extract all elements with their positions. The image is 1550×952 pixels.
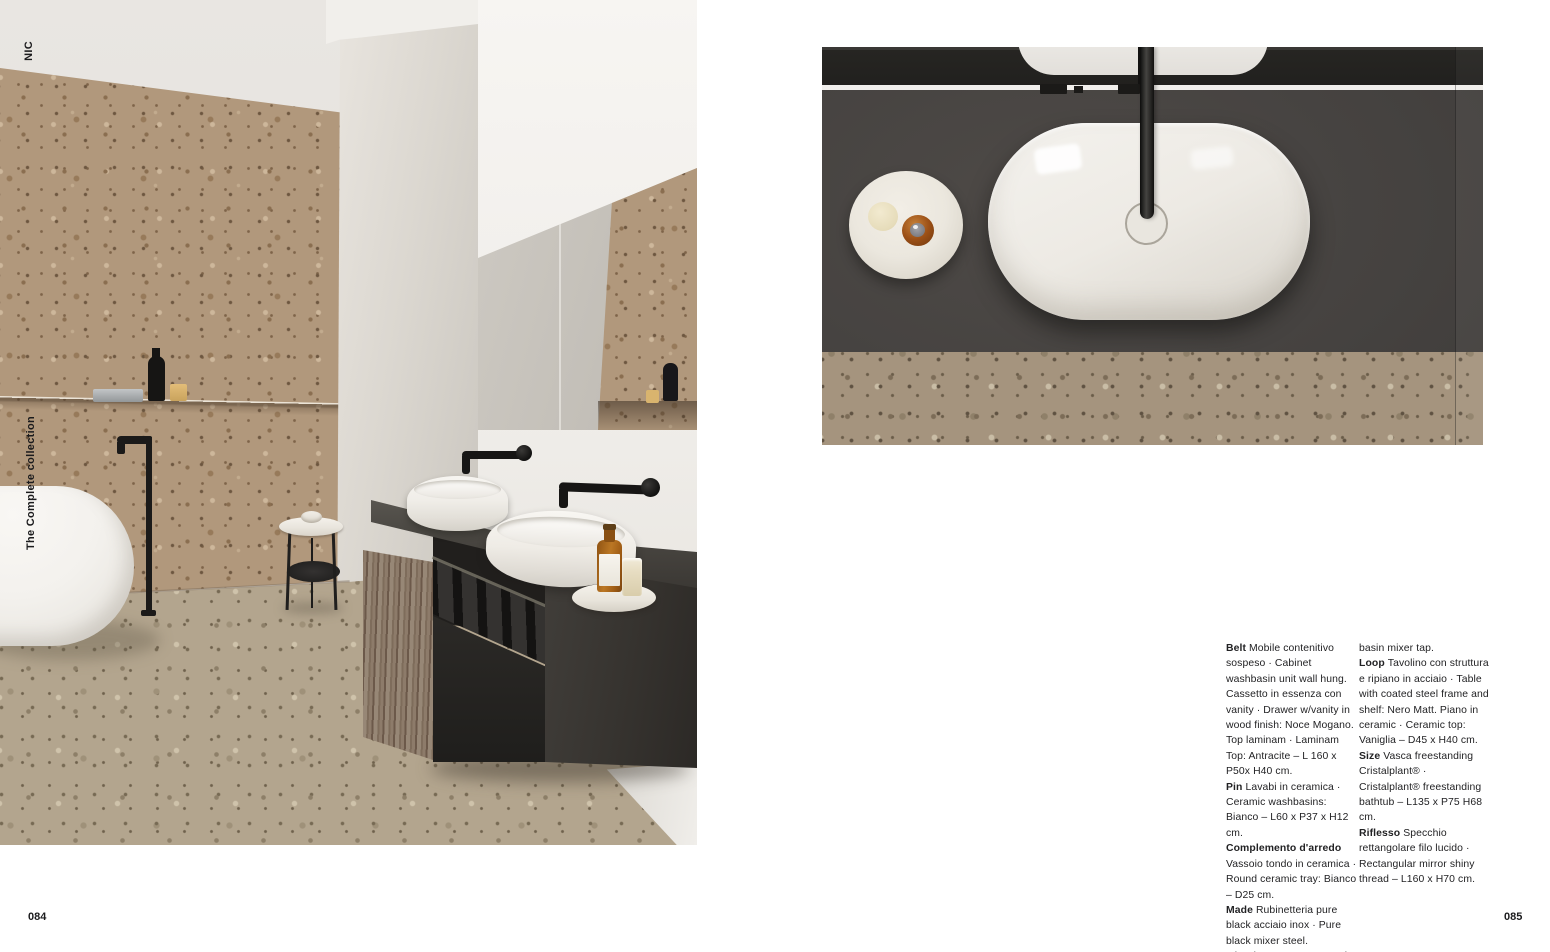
spec-column-2: basin mixer tap.Loop Tavolino con strutt…: [1359, 641, 1489, 888]
mixer-handle: [1118, 84, 1140, 94]
folded-towel: [93, 389, 143, 402]
floor-mixer-tap-base: [141, 610, 156, 616]
spec-item: basin mixer tap.: [1359, 641, 1489, 656]
spec-item: Pin Lavabi in ceramica · Ceramic washbas…: [1226, 780, 1358, 842]
page-number-left: 084: [28, 911, 46, 923]
gold-candle: [170, 384, 187, 401]
spec-item: Riflesso Specchio rettangolare filo luci…: [1359, 826, 1489, 888]
washbasin-left-rim: [414, 480, 501, 499]
black-bottle-neck: [152, 348, 160, 358]
counter-seam: [1455, 47, 1483, 445]
soap-bar: [868, 202, 898, 231]
mirror-shelf-reflection: [598, 401, 697, 430]
mixer-handle: [1074, 86, 1083, 93]
page-number-right: 085: [1504, 911, 1522, 923]
right-photo-basin-top-view: [822, 47, 1483, 445]
side-table-bowl: [301, 511, 322, 523]
floor-mixer-tap-pole: [146, 437, 152, 614]
spec-item: Belt Mobile contenitivo sospeso · Cabine…: [1226, 641, 1358, 780]
wall-mixer-tap-right-flange: [641, 478, 660, 497]
wall-mixer-tap-left-outlet: [462, 456, 470, 474]
spec-item: Size Vasca freestanding Cristalplant® · …: [1359, 749, 1489, 826]
spec-item: Made Rubinetteria pure black acciaio ino…: [1226, 903, 1358, 952]
black-mixer-tap: [1140, 47, 1154, 219]
mirror-bottle-reflection: [663, 363, 678, 401]
wall-mixer-tap-right-outlet: [559, 489, 568, 508]
mirror-candle-reflection: [646, 390, 659, 403]
amber-bottle-label: [599, 554, 620, 586]
mixer-handle: [1040, 84, 1067, 94]
catalog-spread: NIC The Complete collection 084 085 Belt…: [0, 0, 1550, 952]
spec-column-1: Belt Mobile contenitivo sospeso · Cabine…: [1226, 641, 1358, 952]
amber-bottle-cap: [603, 524, 616, 530]
collection-code: NIC: [23, 41, 35, 61]
floor-mixer-tap-outlet: [117, 442, 125, 454]
amber-dish-highlight: [913, 225, 918, 229]
black-bottle: [148, 356, 165, 401]
wall-mixer-tap-left-flange: [516, 445, 532, 461]
collection-label: The Complete collection: [25, 416, 37, 550]
amber-bottle-neck: [604, 528, 615, 542]
glass-candle: [622, 558, 642, 596]
left-photo-bathroom-scene: [0, 0, 697, 845]
spec-item: Loop Tavolino con struttura e ripiano in…: [1359, 656, 1489, 748]
spec-item: Complemento d'arredo Vassoio tondo in ce…: [1226, 841, 1358, 903]
terrazzo-splashback: [822, 352, 1483, 445]
